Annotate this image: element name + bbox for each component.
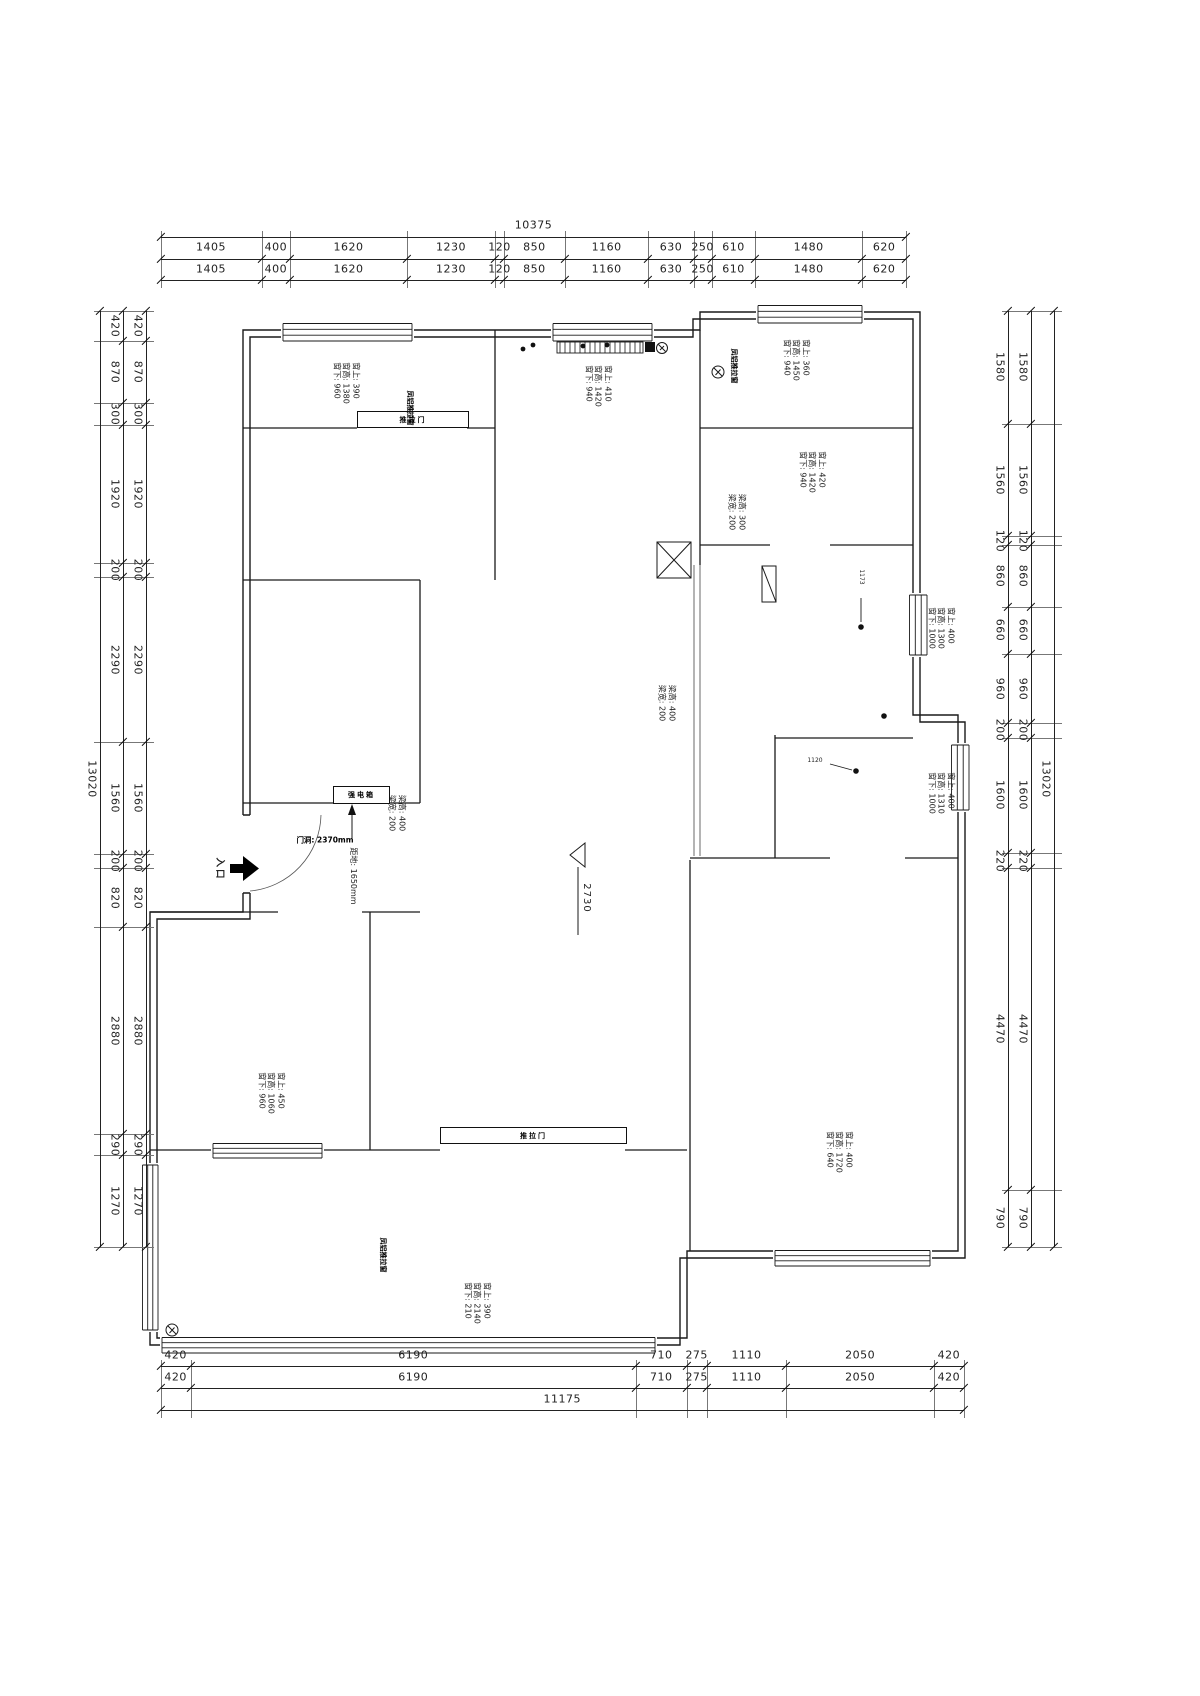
annotation-entry: 入口: [214, 857, 224, 880]
dim-value: 1160: [592, 241, 622, 254]
dim-value: 420: [938, 1370, 961, 1383]
dim-value: 120: [488, 241, 511, 254]
dim-value: 120: [488, 262, 511, 275]
label-door-opening: 门洞: 2370mm: [296, 835, 353, 846]
dim-value: 420: [109, 314, 122, 337]
dim-value: 1230: [436, 241, 466, 254]
exterior-walls: [150, 312, 965, 1345]
entry-arrow-icon: [230, 856, 259, 881]
dim-value: 960: [1017, 677, 1030, 700]
dim-value: 870: [132, 361, 145, 384]
dim-value: 710: [650, 1370, 673, 1383]
dim-value: 1560: [109, 783, 122, 813]
dim-line: [161, 1388, 964, 1389]
dim-line: [161, 1366, 964, 1367]
dim-value: 120: [994, 529, 1007, 552]
dim-value: 300: [132, 403, 145, 426]
dim-value: 1270: [132, 1186, 145, 1216]
annotation-h1173: 1173: [858, 569, 864, 584]
dim-value: 275: [685, 1370, 708, 1383]
dim-value: 300: [109, 403, 122, 426]
height-leader-arrow: [348, 804, 356, 838]
dim-value: 1405: [196, 262, 226, 275]
annotation-win-balcony: 窗上: 390 窗高: 2140 窗下: 210: [463, 1282, 492, 1324]
dim-value: 420: [164, 1370, 187, 1383]
dim-value: 820: [109, 887, 122, 910]
dim-value: 660: [994, 619, 1007, 642]
annotation-beam-living: 梁高: 400 梁宽: 200: [658, 685, 677, 722]
outlet-symbols: [521, 343, 887, 774]
dim-total: 13020: [86, 760, 99, 798]
dim-value: 2050: [845, 1348, 875, 1361]
annotation-level: 2730: [581, 883, 591, 912]
dim-value: 860: [994, 565, 1007, 588]
dim-line: [161, 1410, 964, 1411]
dim-value: 790: [994, 1207, 1007, 1230]
dim-value: 4470: [1017, 1014, 1030, 1044]
dim-line: [1008, 311, 1009, 1247]
annotation-win-bath: 窗上: 360 窗高: 1450 窗下: 940: [782, 339, 811, 381]
dim-value: 4470: [994, 1014, 1007, 1044]
floorplan-drawing: [0, 0, 1200, 1696]
annotation-win-bed2: 窗上: 420 窗高: 1420 窗下: 940: [798, 451, 827, 493]
dim-value: 420: [132, 314, 145, 337]
dim-value: 2290: [109, 645, 122, 675]
annotation-win-master: 窗上: 400 窗高: 1720 窗下: 640: [825, 1131, 854, 1173]
dim-value: 200: [109, 850, 122, 873]
dim-value: 420: [164, 1348, 187, 1361]
dim-value: 1920: [109, 479, 122, 509]
dim-value: 275: [685, 1348, 708, 1361]
dim-value: 820: [132, 887, 145, 910]
dim-value: 1580: [1017, 352, 1030, 382]
annotation-h1120: 1120: [807, 758, 822, 764]
dim-value: 250: [691, 262, 714, 275]
dim-value: 1620: [334, 241, 364, 254]
dim-value: 6190: [398, 1370, 428, 1383]
dim-value: 400: [265, 262, 288, 275]
dim-value: 1600: [1017, 780, 1030, 810]
floorplan-sheet: 1405400162012301208501160630250610148062…: [0, 0, 1200, 1696]
dim-value: 1480: [794, 241, 824, 254]
flue-symbols: [657, 542, 776, 602]
annotation-win-study: 窗上: 390 窗高: 1380 窗下: 960: [332, 362, 361, 404]
dim-value: 660: [1017, 619, 1030, 642]
dim-value: 400: [265, 241, 288, 254]
dim-value: 710: [650, 1348, 673, 1361]
dim-value: 1560: [132, 783, 145, 813]
dim-value: 850: [523, 241, 546, 254]
label-win-brand-balcony: 凤铝推拉窗: [378, 1238, 388, 1273]
label-door-balcony: 推拉门: [440, 1127, 627, 1144]
beam-lines: [694, 565, 700, 856]
label-win-brand-study: 凤铝推拉窗: [405, 391, 415, 426]
dim-value: 200: [132, 850, 145, 873]
dim-value: 1110: [731, 1348, 761, 1361]
dim-value: 420: [938, 1348, 961, 1361]
window-symbols: [140, 303, 971, 1355]
dim-value: 790: [1017, 1207, 1030, 1230]
dim-line: [1031, 311, 1032, 1247]
dim-line: [161, 280, 907, 281]
dim-value: 2880: [132, 1016, 145, 1046]
annotation-win-right-low: 窗上: 400 窗高: 1310 窗下: 1000: [927, 772, 956, 814]
dim-line: [161, 237, 907, 238]
dim-value: 1560: [1017, 465, 1030, 495]
dim-value: 200: [994, 719, 1007, 742]
dim-value: 630: [660, 241, 683, 254]
dim-value: 1160: [592, 262, 622, 275]
dim-total: 13020: [1040, 760, 1053, 798]
dim-value: 200: [109, 559, 122, 582]
dim-value: 860: [1017, 565, 1030, 588]
entry-door-arc: [250, 815, 321, 891]
dim-value: 1580: [994, 352, 1007, 382]
dim-value: 960: [994, 677, 1007, 700]
dim-value: 610: [722, 241, 745, 254]
dim-line: [161, 259, 907, 260]
dim-value: 620: [873, 241, 896, 254]
label-power-box: 强电箱: [333, 786, 390, 804]
annotation-beam-entry: 梁高: 400 梁宽: 200: [388, 795, 407, 832]
dim-value: 620: [873, 262, 896, 275]
dim-value: 2880: [109, 1016, 122, 1046]
dim-total: 10375: [515, 219, 553, 232]
dim-value: 1405: [196, 241, 226, 254]
label-win-brand-bath: 凤铝推拉窗: [729, 349, 739, 384]
dim-value: 1480: [794, 262, 824, 275]
dim-value: 850: [523, 262, 546, 275]
dim-value: 1920: [132, 479, 145, 509]
dim-value: 200: [132, 559, 145, 582]
dim-value: 250: [691, 241, 714, 254]
dim-value: 610: [722, 262, 745, 275]
dim-value: 220: [1017, 849, 1030, 872]
dim-value: 200: [1017, 719, 1030, 742]
dim-value: 120: [1017, 529, 1030, 552]
dim-line: [100, 311, 101, 1247]
dim-value: 1230: [436, 262, 466, 275]
dim-line: [146, 311, 147, 1247]
dim-value: 1560: [994, 465, 1007, 495]
dim-value: 1110: [731, 1370, 761, 1383]
dim-value: 2290: [132, 645, 145, 675]
annotation-floor-height: 距地: 1650mm: [348, 847, 358, 904]
annotation-win-right-mid: 窗上: 400 窗高: 1300 窗下: 1000: [927, 607, 956, 649]
dim-total: 11175: [543, 1392, 581, 1405]
dim-value: 1600: [994, 780, 1007, 810]
annotation-win-bed3: 窗上: 450 窗高: 1060 窗下: 960: [257, 1072, 286, 1114]
dim-value: 1270: [109, 1186, 122, 1216]
dim-line: [123, 311, 124, 1247]
dim-value: 1620: [334, 262, 364, 275]
dim-value: 220: [994, 849, 1007, 872]
dim-value: 870: [109, 361, 122, 384]
dim-value: 290: [132, 1134, 145, 1157]
dim-value: 630: [660, 262, 683, 275]
dim-value: 2050: [845, 1370, 875, 1383]
annotation-beam-bath: 梁高: 300 梁宽: 200: [728, 494, 747, 531]
annotation-win-kitchen: 窗上: 410 窗高: 1420 窗下: 940: [584, 365, 613, 407]
dim-line: [1054, 311, 1055, 1247]
dim-value: 290: [109, 1134, 122, 1157]
dim-value: 6190: [398, 1348, 428, 1361]
